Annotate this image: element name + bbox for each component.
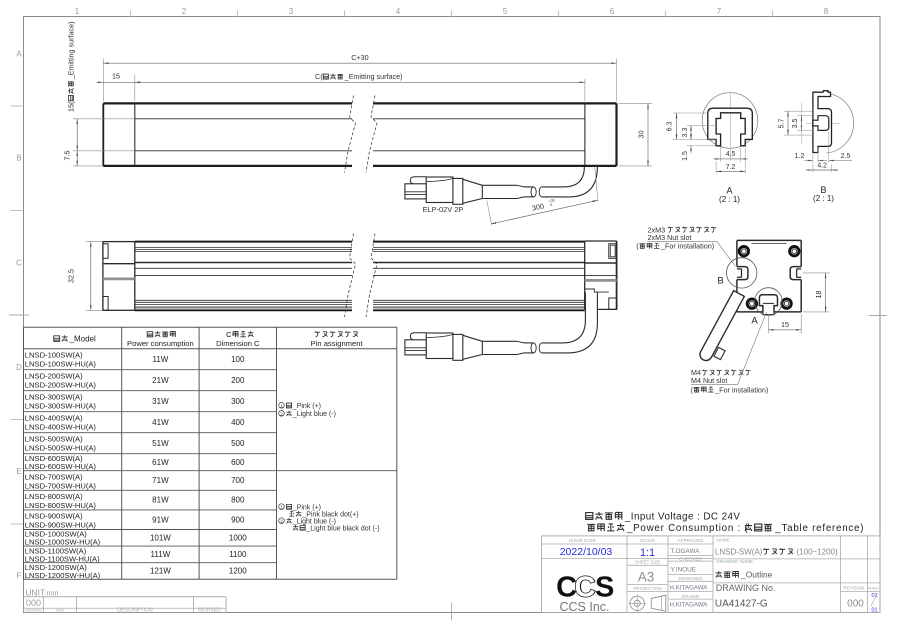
svg-text:UNIT: UNIT <box>25 588 46 598</box>
svg-text:C: C <box>16 259 22 268</box>
svg-text:800: 800 <box>231 496 245 505</box>
svg-text:51W: 51W <box>152 439 169 448</box>
svg-text:Dimension C: Dimension C <box>216 339 260 348</box>
svg-text:LNSD-300SW-HU(A): LNSD-300SW-HU(A) <box>25 401 97 410</box>
svg-text:2.5: 2.5 <box>841 153 851 160</box>
svg-text:4: 4 <box>396 7 401 16</box>
svg-text:H.KITAGAWA: H.KITAGAWA <box>670 584 709 591</box>
svg-text:_For installation): _For installation) <box>660 242 714 251</box>
svg-text:2: 2 <box>280 411 283 416</box>
svg-text:_Model: _Model <box>69 335 96 344</box>
svg-text:7.5: 7.5 <box>63 151 72 161</box>
svg-text:8: 8 <box>824 7 829 16</box>
svg-text:_Outline: _Outline <box>740 570 773 580</box>
svg-text:A3: A3 <box>638 570 655 585</box>
svg-text:M4 Nut slot: M4 Nut slot <box>691 376 727 385</box>
svg-text:1:1: 1:1 <box>640 547 655 559</box>
svg-text:NAME: NAME <box>716 537 729 542</box>
svg-text::mm: :mm <box>45 589 59 598</box>
svg-text:H.KITAGAWA: H.KITAGAWA <box>670 601 709 608</box>
svg-text:7.2: 7.2 <box>726 164 736 171</box>
svg-text:A: A <box>726 186 732 196</box>
svg-text:F: F <box>17 572 22 581</box>
svg-text:15: 15 <box>112 72 120 81</box>
svg-text:_Emitting surface): _Emitting surface) <box>67 21 76 80</box>
svg-text:LNSD-700SW(A): LNSD-700SW(A) <box>25 472 83 481</box>
svg-text:4.2: 4.2 <box>817 163 827 170</box>
svg-text:000: 000 <box>847 599 864 610</box>
svg-text:1200: 1200 <box>229 567 247 576</box>
svg-text:DESIGNED: DESIGNED <box>679 576 704 581</box>
svg-text:3: 3 <box>289 7 294 16</box>
svg-text:B: B <box>717 276 723 287</box>
svg-text:REVISION: REVISION <box>25 609 42 613</box>
svg-text:T.OGAWA: T.OGAWA <box>671 548 701 555</box>
svg-text:0: 0 <box>550 203 553 207</box>
svg-text:Pin assignment: Pin assignment <box>311 339 364 348</box>
svg-text:101W: 101W <box>150 533 171 542</box>
svg-text:_Table reference): _Table reference) <box>774 523 864 534</box>
svg-text:91W: 91W <box>152 515 169 524</box>
svg-text:3.5: 3.5 <box>792 119 799 129</box>
svg-text:6.3: 6.3 <box>667 122 674 132</box>
svg-text:LNSD-400SW(A): LNSD-400SW(A) <box>25 413 83 422</box>
svg-text:DRAWING No.: DRAWING No. <box>716 583 776 593</box>
svg-text:LNSD-700SW-HU(A): LNSD-700SW-HU(A) <box>25 481 97 490</box>
svg-text:APPROVED: APPROVED <box>678 538 704 543</box>
svg-text:LNSD-1200SW-HU(A): LNSD-1200SW-HU(A) <box>25 571 101 580</box>
svg-text:_Pink (+): _Pink (+) <box>292 403 321 410</box>
svg-text:ISSUE DATE: ISSUE DATE <box>569 538 596 543</box>
svg-text:LNSD-600SW-HU(A): LNSD-600SW-HU(A) <box>25 462 97 471</box>
svg-text:1000: 1000 <box>229 533 247 542</box>
svg-text:11W: 11W <box>152 355 168 364</box>
svg-text:1: 1 <box>280 505 283 510</box>
svg-text:2: 2 <box>182 7 187 16</box>
svg-text:Power consumption: Power consumption <box>127 339 194 348</box>
svg-text:5.7: 5.7 <box>779 119 786 129</box>
svg-text:121W: 121W <box>150 567 171 576</box>
svg-text:LNSD-100SW(A): LNSD-100SW(A) <box>25 350 83 359</box>
svg-text:E: E <box>16 467 21 476</box>
svg-text:111W: 111W <box>151 550 171 559</box>
svg-text:DESCRIPTION: DESCRIPTION <box>117 608 153 614</box>
svg-text:30: 30 <box>637 131 646 139</box>
svg-text:SHEET SIZE: SHEET SIZE <box>635 560 661 565</box>
svg-text:LNSD-900SW-HU(A): LNSD-900SW-HU(A) <box>25 521 97 530</box>
svg-text:LNSD-500SW(A): LNSD-500SW(A) <box>25 434 83 443</box>
svg-text:100: 100 <box>231 355 245 364</box>
svg-text:6: 6 <box>610 7 615 16</box>
svg-text:B: B <box>16 154 21 163</box>
svg-text:900: 900 <box>231 515 245 524</box>
svg-text:_For installation): _For installation) <box>714 385 768 394</box>
svg-text:_Light blue black dot (-): _Light blue black dot (-) <box>305 525 379 532</box>
svg-text:1: 1 <box>75 7 80 16</box>
svg-text:71W: 71W <box>152 476 169 485</box>
svg-text:REVISED: REVISED <box>198 608 221 614</box>
svg-text:A: A <box>751 316 758 327</box>
svg-text:300: 300 <box>531 201 545 212</box>
svg-text:LNSD-400SW-HU(A): LNSD-400SW-HU(A) <box>25 422 97 431</box>
svg-text:_Input Voltage : DC 24V: _Input Voltage : DC 24V <box>624 512 740 523</box>
svg-text:(2 : 1): (2 : 1) <box>719 195 740 204</box>
svg-text:LNSD-200SW(A): LNSD-200SW(A) <box>25 371 83 380</box>
svg-text:REVISION: REVISION <box>844 586 865 591</box>
svg-text:LNSD-SW(A): LNSD-SW(A) <box>715 548 763 557</box>
svg-text:(100~1200): (100~1200) <box>797 548 838 557</box>
svg-text:2: 2 <box>280 519 283 524</box>
svg-text:01: 01 <box>872 593 878 599</box>
svg-text:Y.INOUE: Y.INOUE <box>671 567 696 574</box>
svg-text:5: 5 <box>503 7 508 16</box>
svg-text:(: ( <box>691 385 694 394</box>
svg-text:ELP-02V 2P: ELP-02V 2P <box>423 205 464 214</box>
svg-text:_Pink black dot(+): _Pink black dot(+) <box>301 511 358 518</box>
svg-text:400: 400 <box>231 418 245 427</box>
svg-text:_Pink (+): _Pink (+) <box>292 504 321 511</box>
svg-text:DATE: DATE <box>56 609 66 613</box>
svg-text:_Light blue (-): _Light blue (-) <box>292 411 336 418</box>
svg-text:(2 : 1): (2 : 1) <box>813 194 834 203</box>
svg-text:D: D <box>16 363 22 372</box>
svg-text:1: 1 <box>280 403 283 408</box>
svg-text:UA41427-G: UA41427-G <box>715 599 768 610</box>
svg-text:LNSD-800SW-HU(A): LNSD-800SW-HU(A) <box>25 501 97 510</box>
svg-text:31W: 31W <box>152 397 169 406</box>
svg-text:200: 200 <box>231 376 245 385</box>
svg-text:18: 18 <box>814 291 823 299</box>
svg-text:CHECKED: CHECKED <box>679 556 702 561</box>
svg-text:_Emitting surface): _Emitting surface) <box>344 72 403 81</box>
svg-text:1100: 1100 <box>229 550 247 559</box>
svg-text:2022/10/03: 2022/10/03 <box>560 546 613 558</box>
svg-text:LNSD-300SW(A): LNSD-300SW(A) <box>25 392 83 401</box>
svg-text:DRAWING NAME: DRAWING NAME <box>716 559 753 564</box>
svg-text:C: C <box>226 330 232 339</box>
svg-text:1.5: 1.5 <box>682 151 689 161</box>
svg-text:3.3: 3.3 <box>682 128 689 138</box>
svg-text:700: 700 <box>231 476 245 485</box>
svg-text:PROJECTION: PROJECTION <box>633 586 661 591</box>
svg-text:LNSD-200SW-HU(A): LNSD-200SW-HU(A) <box>25 380 97 389</box>
svg-text:(: ( <box>636 242 639 251</box>
svg-text:LNSD-800SW(A): LNSD-800SW(A) <box>25 492 83 501</box>
svg-text:7: 7 <box>717 7 722 16</box>
svg-text:4.5: 4.5 <box>726 151 736 158</box>
svg-text:15: 15 <box>781 320 789 329</box>
svg-text:300: 300 <box>231 397 245 406</box>
svg-text:01: 01 <box>872 607 878 613</box>
svg-text:61W: 61W <box>152 458 169 467</box>
svg-text:LNSD-100SW-HU(A): LNSD-100SW-HU(A) <box>25 359 97 368</box>
svg-text:C(: C( <box>315 72 323 81</box>
svg-text:000: 000 <box>26 598 41 608</box>
svg-text:32.5: 32.5 <box>67 269 76 283</box>
svg-text:C+30: C+30 <box>351 53 368 62</box>
svg-text:600: 600 <box>231 458 245 467</box>
svg-text:41W: 41W <box>152 418 169 427</box>
svg-text:DRAWN: DRAWN <box>682 594 699 599</box>
svg-text:LNSD-900SW(A): LNSD-900SW(A) <box>25 512 83 521</box>
svg-text:1.2: 1.2 <box>795 153 805 160</box>
svg-text:500: 500 <box>231 439 245 448</box>
svg-text:C: C <box>575 572 596 604</box>
svg-text:_Power Consumption : (: _Power Consumption : ( <box>626 523 749 534</box>
svg-text:_Light blue (-): _Light blue (-) <box>292 518 336 525</box>
svg-text:CCS Inc.: CCS Inc. <box>559 600 609 614</box>
svg-text:SCALE: SCALE <box>640 538 655 543</box>
svg-text:21W: 21W <box>152 376 169 385</box>
svg-text:15(: 15( <box>67 101 76 112</box>
svg-text:81W: 81W <box>152 496 169 505</box>
svg-text:SHEET: SHEET <box>868 586 879 590</box>
svg-text:LNSD-500SW-HU(A): LNSD-500SW-HU(A) <box>25 443 97 452</box>
svg-text:A: A <box>16 50 22 59</box>
